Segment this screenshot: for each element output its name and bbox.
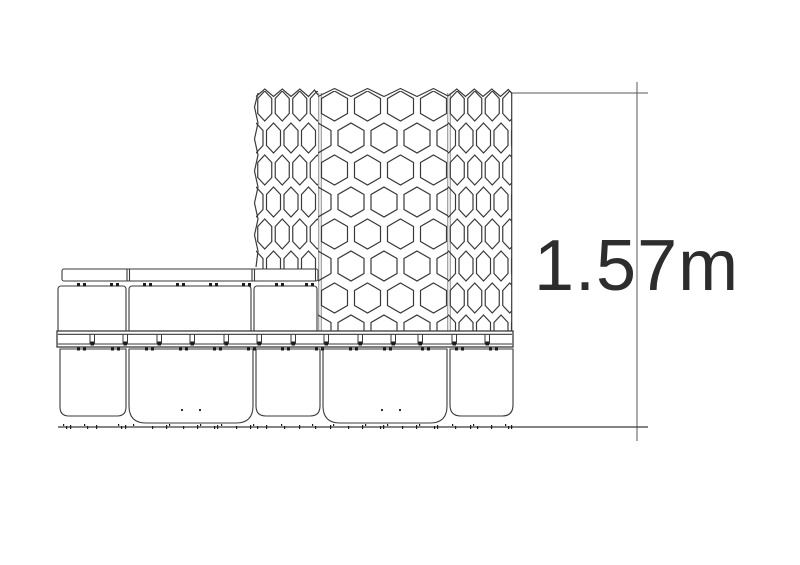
base-module-5 bbox=[450, 349, 513, 416]
backrest-module-left bbox=[58, 286, 126, 333]
base-drain-dot bbox=[381, 409, 383, 411]
elevation-drawing-canvas: 1.57m bbox=[0, 0, 800, 565]
base-module-4 bbox=[323, 349, 447, 423]
base-drain-dot bbox=[399, 409, 401, 411]
base-drain-dot bbox=[199, 409, 201, 411]
dimension-label: 1.57m bbox=[534, 226, 739, 306]
screen-panel-right bbox=[448, 91, 512, 333]
bench-top-rail bbox=[62, 269, 318, 281]
screen-panel-center bbox=[318, 91, 448, 333]
base-module-1 bbox=[60, 349, 126, 416]
base-module-3 bbox=[256, 349, 320, 416]
base-module-2 bbox=[129, 349, 253, 423]
backrest-module-right bbox=[254, 286, 317, 333]
backrest-module-center bbox=[129, 286, 251, 333]
base-drain-dot bbox=[181, 409, 183, 411]
screen-panel-left bbox=[256, 91, 318, 270]
elevation-drawing: 1.57m bbox=[0, 0, 800, 565]
